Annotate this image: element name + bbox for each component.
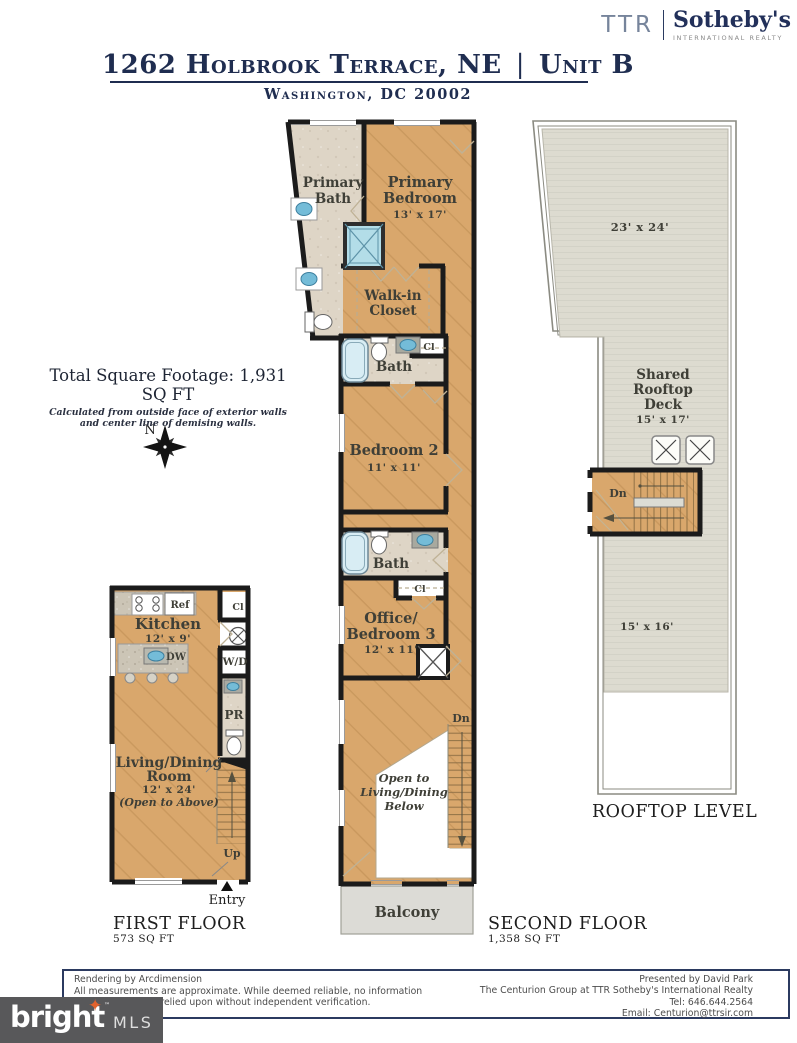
label-wd: W/D [222, 656, 248, 668]
label-primary-bedroom2: Bedroom [383, 190, 458, 207]
label-kitchen: Kitchen [135, 615, 201, 633]
label-walk-in2: Closet [369, 303, 417, 319]
property-address-title: 1262 Holbrook Terrace, NE|Unit B [102, 50, 634, 80]
roof-stairwell [590, 470, 702, 534]
label-cl-lower: Cl [414, 584, 426, 595]
label-bedroom2-dim: 11' x 11' [367, 462, 421, 474]
ttr-logo-text: TTR [601, 12, 654, 38]
label-open2: Living/Dining [359, 785, 448, 799]
label-first-floor: FIRST FLOOR [113, 914, 246, 934]
footer-disclaimer-line1: All measurements are approximate. While … [74, 986, 422, 998]
label-bath-lower: Bath [373, 556, 409, 572]
label-open1: Open to [379, 771, 430, 785]
label-roof-lower-dim: 15' x 16' [620, 621, 674, 633]
logo-divider [663, 10, 664, 40]
sothebys-logo-text: Sotheby's [673, 8, 791, 32]
first-floor-plan: Kitchen 12' x 9' Ref Cl DW W/D PR Living… [108, 586, 250, 945]
total-square-footage: Total Square Footage: 1,931 SQ FT [40, 366, 296, 404]
label-open3: Below [384, 799, 425, 813]
label-cl-upper: Cl [423, 342, 435, 353]
floorplan-sheet: Primary Bath Primary Bedroom 13' x 17' W… [0, 0, 797, 1043]
bright-mls-logo: bright ✦ ™ MLS [0, 997, 163, 1043]
label-deck-dim: 15' x 17' [636, 414, 690, 426]
bright-star-icon: ✦ [88, 996, 102, 1016]
label-walk-in: Walk-in [363, 288, 421, 304]
sheet-title-block: 1262 Holbrook Terrace, NE|Unit B [48, 50, 688, 80]
sothebys-tagline: INTERNATIONAL REALTY [673, 34, 791, 42]
label-office-dim: 12' x 11' [364, 644, 418, 656]
footer-presented-by: Presented by David Park [480, 974, 753, 985]
trademark-symbol: ™ [104, 1002, 110, 1009]
label-primary-bath2: Bath [315, 191, 351, 207]
label-primary-bedroom-dim: 13' x 17' [393, 209, 447, 221]
label-bedroom2: Bedroom 2 [349, 442, 438, 459]
label-rooftop-level: ROOFTOP LEVEL [592, 802, 757, 822]
label-up: Up [223, 847, 241, 860]
first-floor-stairs-up [217, 760, 248, 844]
footer-rendering-credit: Rendering by Arcdimension [74, 974, 422, 986]
label-dn-second: Dn [452, 712, 470, 725]
footer-email: Email: Centurion@ttrsir.com [480, 1008, 753, 1019]
utility-circle [230, 628, 247, 645]
mls-logo-text: MLS [113, 1013, 153, 1032]
footer-telephone: Tel: 646.644.2564 [480, 997, 753, 1008]
footer-agent-info: Presented by David Park The Centurion Gr… [480, 974, 753, 1019]
title-separator: | [502, 50, 539, 80]
label-balcony: Balcony [375, 904, 440, 921]
label-primary-bath: Primary [303, 175, 365, 191]
label-kitchen-dim: 12' x 9' [145, 633, 191, 645]
label-dw: DW [166, 652, 187, 663]
sqft-note-line2: and center line of demising walls. [40, 418, 296, 429]
compass-rose: N [143, 423, 187, 469]
label-dn-roof: Dn [609, 487, 627, 500]
label-entry: Entry [209, 893, 246, 908]
label-second-floor-area: 1,358 SQ FT [488, 933, 560, 945]
second-floor-shaft [418, 646, 448, 678]
label-ref: Ref [171, 600, 191, 611]
label-deck3: Deck [644, 397, 683, 413]
label-bath-upper: Bath [376, 359, 412, 375]
label-living-dim: 12' x 24' [142, 784, 196, 796]
sqft-note-line1: Calculated from outside face of exterior… [40, 407, 296, 418]
kitchen-island [118, 644, 188, 683]
rooftop-plan: 23' x 24' Shared Rooftop Deck 15' x 17' … [533, 121, 757, 822]
label-office: Office/ [364, 610, 418, 627]
label-first-floor-area: 573 SQ FT [113, 933, 174, 945]
label-second-floor: SECOND FLOOR [488, 914, 647, 934]
label-living2: Room [146, 769, 191, 785]
brokerage-logo: TTR Sotheby's INTERNATIONAL REALTY [601, 8, 791, 42]
title-underline [110, 81, 588, 83]
label-office2: Bedroom 3 [346, 626, 435, 643]
shower [345, 224, 383, 268]
footer-company: The Centurion Group at TTR Sotheby's Int… [480, 985, 753, 996]
label-deck2: Rooftop [633, 382, 693, 398]
label-pr: PR [225, 708, 245, 722]
label-deck1: Shared [636, 367, 690, 383]
floorplan-canvas: Primary Bath Primary Bedroom 13' x 17' W… [0, 0, 797, 1043]
property-city: Washington, DC 20002 [48, 86, 688, 103]
entry-arrow [221, 881, 233, 891]
unit-text: Unit B [539, 50, 634, 80]
square-footage-summary: Total Square Footage: 1,931 SQ FT Calcul… [40, 366, 296, 429]
stove [132, 594, 163, 615]
label-roof-upper-dim: 23' x 24' [611, 220, 669, 234]
label-cl-first: Cl [232, 602, 244, 613]
label-primary-bedroom: Primary [388, 174, 453, 191]
label-living-note: (Open to Above) [119, 796, 219, 809]
address-text: 1262 Holbrook Terrace, NE [102, 50, 502, 80]
